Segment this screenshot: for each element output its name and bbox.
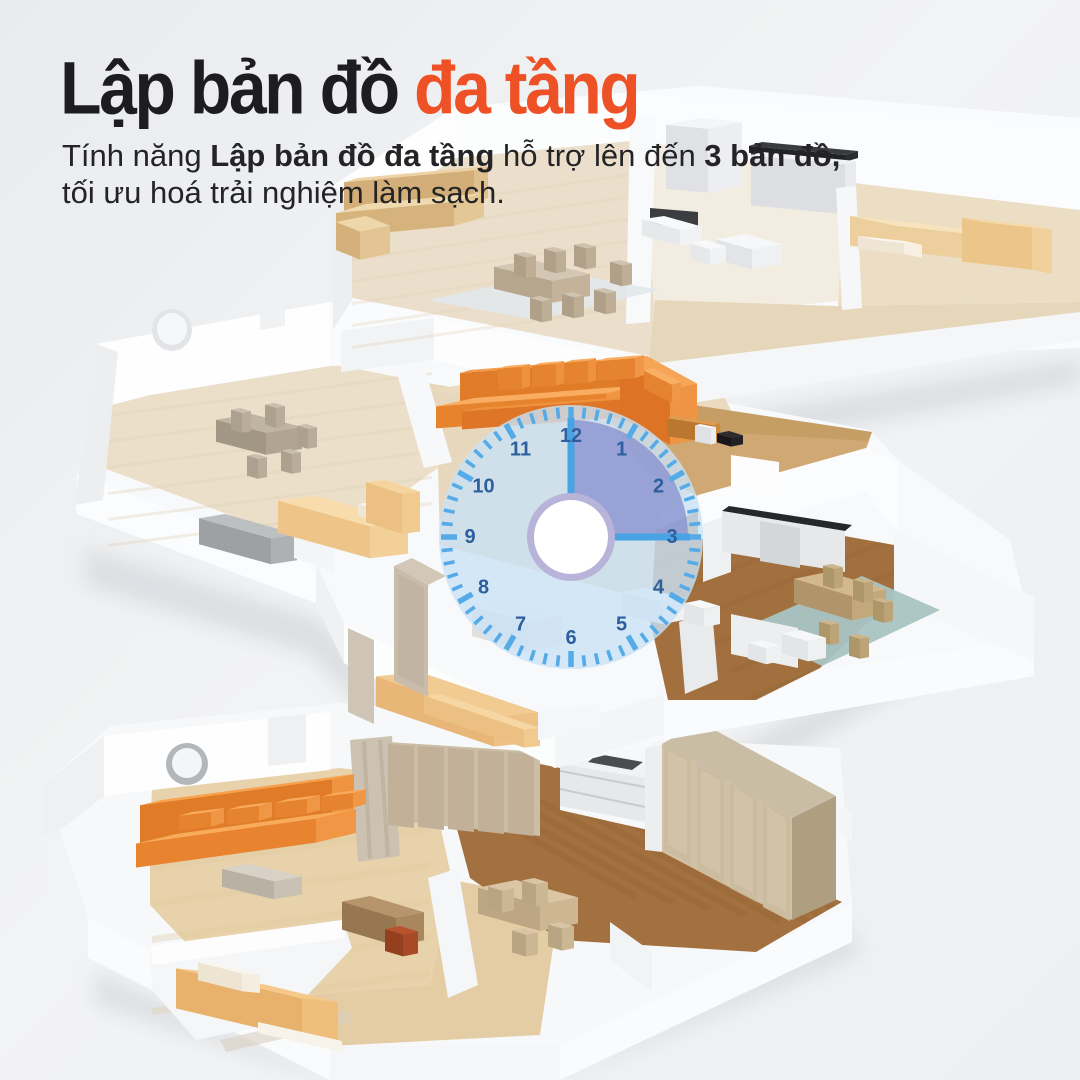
- svg-text:3: 3: [666, 526, 677, 548]
- svg-text:4: 4: [653, 577, 665, 599]
- svg-text:1: 1: [616, 439, 627, 461]
- svg-text:12: 12: [560, 425, 582, 447]
- svg-text:8: 8: [478, 577, 489, 599]
- svg-text:2: 2: [653, 476, 664, 498]
- svg-text:5: 5: [616, 614, 627, 636]
- svg-text:6: 6: [565, 627, 576, 649]
- svg-text:7: 7: [515, 614, 526, 636]
- svg-text:11: 11: [510, 439, 531, 461]
- svg-text:9: 9: [464, 526, 475, 548]
- svg-text:10: 10: [472, 476, 494, 498]
